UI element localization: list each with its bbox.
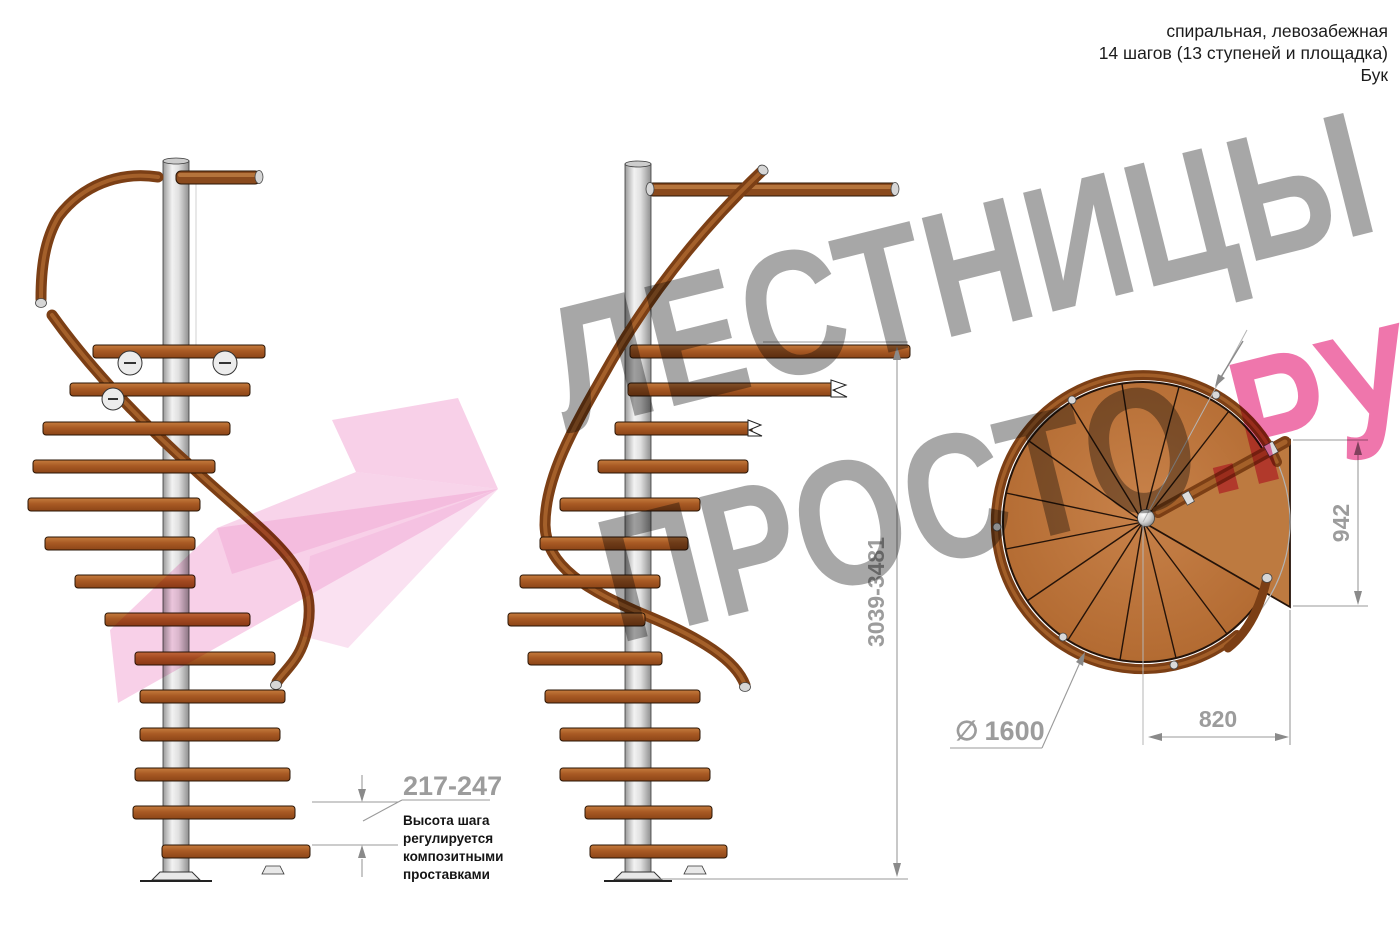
- material-label: Бук: [1099, 64, 1388, 86]
- steps-count-label: 14 шагов (13 ступеней и площадка): [1099, 42, 1388, 64]
- title-block: спиральная, левозабежная 14 шагов (13 ст…: [1099, 20, 1388, 86]
- stair-type-label: спиральная, левозабежная: [1099, 20, 1388, 42]
- drawing-page: 3039-3481 217-247 Высота шага регулирует…: [0, 0, 1400, 944]
